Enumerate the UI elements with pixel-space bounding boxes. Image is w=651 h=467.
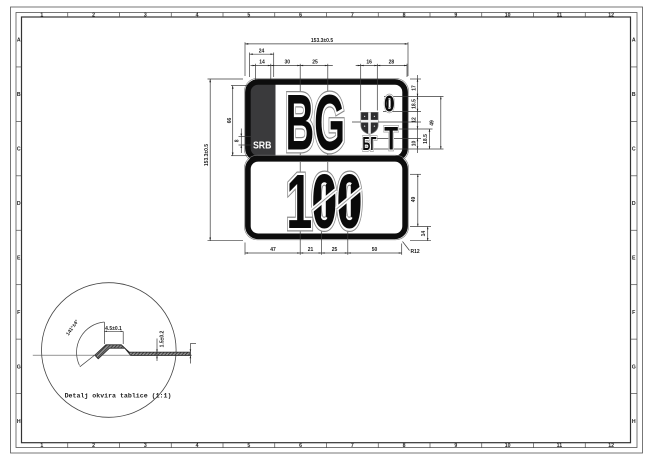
svg-text:10: 10	[505, 13, 511, 19]
svg-text:14: 14	[421, 231, 427, 237]
svg-text:SRB: SRB	[253, 140, 272, 152]
svg-text:G: G	[17, 364, 21, 370]
svg-text:1: 1	[40, 13, 43, 19]
svg-text:7: 7	[351, 13, 354, 19]
svg-text:2: 2	[92, 443, 95, 449]
svg-text:5: 5	[247, 13, 250, 19]
svg-text:A: A	[632, 38, 636, 44]
svg-text:25: 25	[332, 247, 338, 253]
svg-text:12: 12	[608, 443, 614, 449]
svg-text:C: C	[632, 147, 636, 153]
svg-text:G: G	[632, 364, 636, 370]
svg-text:9: 9	[454, 13, 457, 19]
svg-text:153.3±0.5: 153.3±0.5	[204, 144, 210, 166]
svg-text:14: 14	[259, 60, 265, 66]
svg-text:C: C	[17, 147, 21, 153]
svg-text:B: B	[17, 92, 21, 98]
svg-text:16: 16	[366, 60, 372, 66]
svg-text:25: 25	[312, 60, 318, 66]
svg-text:3: 3	[144, 13, 147, 19]
svg-text:6: 6	[299, 13, 302, 19]
svg-text:F: F	[632, 310, 635, 316]
svg-text:БГ: БГ	[363, 134, 377, 155]
svg-text:9: 9	[454, 443, 457, 449]
svg-text:8: 8	[403, 13, 406, 19]
svg-text:21: 21	[308, 247, 314, 253]
svg-text:B: B	[632, 92, 636, 98]
svg-text:1.5±0.2: 1.5±0.2	[160, 330, 166, 347]
svg-text:7: 7	[351, 443, 354, 449]
svg-text:T: T	[384, 121, 398, 157]
svg-text:11: 11	[557, 13, 563, 19]
svg-text:D: D	[17, 201, 21, 207]
svg-text:5: 5	[247, 443, 250, 449]
svg-text:4: 4	[196, 443, 199, 449]
svg-text:18.5: 18.5	[423, 134, 429, 144]
svg-text:10: 10	[505, 443, 511, 449]
svg-text:2: 2	[92, 13, 95, 19]
svg-text:BG: BG	[286, 80, 346, 167]
svg-text:50: 50	[372, 247, 378, 253]
svg-text:4.5±0.1: 4.5±0.1	[105, 326, 122, 332]
svg-text:6: 6	[299, 443, 302, 449]
svg-text:E: E	[17, 255, 21, 261]
svg-text:Detalj okvira tablice (1:1): Detalj okvira tablice (1:1)	[65, 393, 172, 400]
svg-text:28: 28	[389, 60, 395, 66]
svg-text:1: 1	[40, 443, 43, 449]
svg-text:18.5: 18.5	[412, 99, 418, 109]
svg-text:R12: R12	[411, 249, 420, 255]
svg-text:153.3±0.5: 153.3±0.5	[311, 38, 333, 44]
svg-text:8: 8	[235, 139, 241, 142]
svg-text:H: H	[632, 419, 636, 425]
svg-text:A: A	[17, 38, 21, 44]
svg-text:F: F	[17, 310, 20, 316]
svg-text:D: D	[632, 201, 636, 207]
svg-text:12: 12	[412, 117, 418, 123]
svg-text:O: O	[384, 92, 394, 118]
svg-text:11: 11	[557, 443, 563, 449]
svg-text:8: 8	[403, 443, 406, 449]
svg-text:47: 47	[270, 247, 276, 253]
svg-text:H: H	[17, 419, 21, 425]
svg-text:66: 66	[227, 118, 233, 124]
svg-text:E: E	[632, 255, 636, 261]
svg-text:4: 4	[196, 13, 199, 19]
svg-text:17: 17	[412, 85, 418, 91]
svg-text:3: 3	[144, 443, 147, 449]
svg-text:30: 30	[285, 60, 291, 66]
svg-text:49: 49	[411, 197, 417, 203]
svg-text:12: 12	[608, 13, 614, 19]
svg-text:49: 49	[430, 120, 436, 126]
svg-text:24: 24	[259, 48, 265, 54]
svg-text:10: 10	[412, 141, 418, 147]
